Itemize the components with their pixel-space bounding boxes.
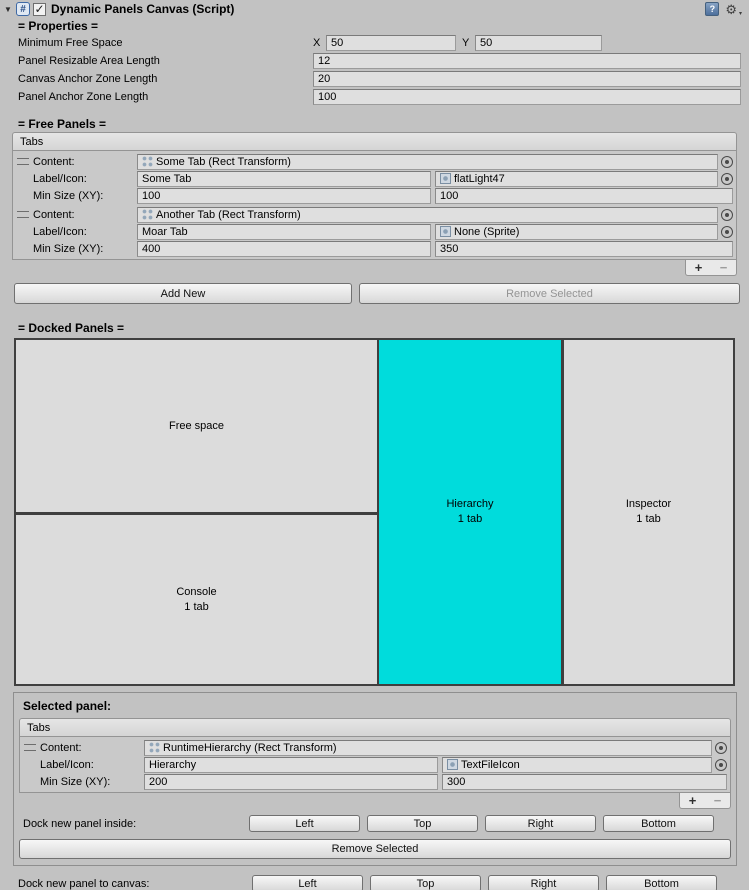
object-picker-icon[interactable] [721,226,733,238]
properties-section-title: = Properties = [0,18,749,34]
min-size-row: Min Size (XY): 400 350 [13,240,736,257]
tab-label-field[interactable]: Hierarchy [144,757,438,773]
panel-resizable-area-label: Panel Resizable Area Length [18,55,313,67]
remove-selected-button[interactable]: Remove Selected [359,283,740,304]
tab-icon-object-field[interactable]: None (Sprite) [435,224,718,240]
sprite-icon [447,759,458,770]
label-icon-row: Label/Icon: Some Tab flatLight47 [13,170,736,187]
content-object-field[interactable]: RuntimeHierarchy (Rect Transform) [144,740,712,756]
dock-canvas-buttons: Left Top Right Bottom [252,875,717,890]
tab-icon-value: flatLight47 [454,173,505,185]
min-size-x-field[interactable]: 200 [144,774,438,790]
enable-checkbox[interactable]: ✓ [33,3,46,16]
docked-panels-section-title: = Docked Panels = [0,320,749,336]
drag-handle-icon[interactable] [24,744,36,751]
minimum-free-space-y-field[interactable]: 50 [475,35,602,51]
dock-canvas-bottom-button[interactable]: Bottom [606,875,717,890]
dock-inside-left-button[interactable]: Left [249,815,360,832]
free-panels-section-title: = Free Panels = [0,116,749,132]
region-hierarchy-label: Hierarchy [446,497,493,512]
content-object-value: Some Tab (Rect Transform) [156,156,291,168]
content-row: Content: Another Tab (Rect Transform) [13,206,736,223]
add-new-button[interactable]: Add New [14,283,352,304]
minimum-free-space-x-field[interactable]: 50 [326,35,456,51]
tabs-list-body: Content: Some Tab (Rect Transform) Label… [12,150,737,260]
content-row: Content: RuntimeHierarchy (Rect Transfor… [20,739,730,756]
dock-canvas-top-button[interactable]: Top [370,875,481,890]
selected-panel-group: Selected panel: Tabs Content: RuntimeHie… [13,692,737,866]
content-label: Content: [40,742,144,754]
y-axis-label: Y [462,37,475,49]
inspector-component: ▼ # ✓ Dynamic Panels Canvas (Script) ? ⚙… [0,0,749,890]
tab-icon-value: TextFileIcon [461,759,520,771]
tab-element-selected: Content: RuntimeHierarchy (Rect Transfor… [20,739,730,790]
content-object-field[interactable]: Some Tab (Rect Transform) [137,154,718,170]
gear-icon[interactable]: ⚙ [725,3,737,16]
x-axis-label: X [313,37,326,49]
panel-anchor-zone-label: Panel Anchor Zone Length [18,91,313,103]
canvas-anchor-zone-row: Canvas Anchor Zone Length 20 [0,70,749,88]
dock-canvas-label: Dock new panel to canvas: [18,878,252,890]
gear-caret-icon: ▾ [739,10,742,17]
content-object-value: Another Tab (Rect Transform) [156,209,301,221]
label-icon-row: Label/Icon: Hierarchy TextFileIcon [20,756,730,773]
min-size-row: Min Size (XY): 100 100 [13,187,736,204]
remove-element-button[interactable]: − [714,793,722,808]
rect-transform-icon [142,156,153,167]
dock-canvas-left-button[interactable]: Left [252,875,363,890]
content-label: Content: [33,156,137,168]
tabs-header-label: Tabs [27,722,50,734]
region-free-space[interactable]: Free space [16,340,377,512]
region-inspector[interactable]: Inspector 1 tab [564,340,733,684]
tab-element-0: Content: Some Tab (Rect Transform) Label… [13,153,736,204]
minimum-free-space-row: Minimum Free Space X 50 Y 50 [0,34,749,52]
panel-resizable-area-field[interactable]: 12 [313,53,741,69]
min-size-label: Min Size (XY): [40,776,144,788]
min-size-row: Min Size (XY): 200 300 [20,773,730,790]
list-footer-buttons: + − [679,793,731,809]
tabs-list-header: Tabs [12,132,737,150]
list-footer: + − [19,793,731,809]
object-picker-icon[interactable] [721,173,733,185]
tabs-header-label: Tabs [20,136,43,148]
min-size-label: Min Size (XY): [33,190,137,202]
object-picker-icon[interactable] [715,742,727,754]
remove-selected-panel-button[interactable]: Remove Selected [19,839,731,859]
drag-handle-icon[interactable] [17,211,29,218]
tab-icon-object-field[interactable]: TextFileIcon [442,757,712,773]
list-footer-buttons: + − [685,260,737,276]
label-icon-label: Label/Icon: [40,759,144,771]
region-inspector-tabs: 1 tab [636,512,660,527]
region-free-space-label: Free space [169,419,224,434]
min-size-y-field[interactable]: 350 [435,241,733,257]
dock-inside-label: Dock new panel inside: [19,818,249,830]
min-size-x-field[interactable]: 100 [137,188,431,204]
object-picker-icon[interactable] [721,209,733,221]
free-panels-list: Tabs Content: Some Tab (Rect Transform) … [12,132,737,260]
min-size-label: Min Size (XY): [33,243,137,255]
dock-canvas-right-button[interactable]: Right [488,875,599,890]
list-footer: + − [12,260,737,276]
tab-icon-value: None (Sprite) [454,226,519,238]
content-object-field[interactable]: Another Tab (Rect Transform) [137,207,718,223]
min-size-y-field[interactable]: 100 [435,188,733,204]
dock-canvas-row: Dock new panel to canvas: Left Top Right… [0,875,749,890]
rect-transform-icon [142,209,153,220]
content-label: Content: [33,209,137,221]
drag-handle-icon[interactable] [17,158,29,165]
tabs-list-header: Tabs [19,718,731,736]
region-inspector-label: Inspector [626,497,671,512]
dock-inside-buttons: Left Top Right Bottom [249,815,714,832]
csharp-script-icon: # [16,2,30,16]
dock-inside-bottom-button[interactable]: Bottom [603,815,714,832]
add-element-button[interactable]: + [695,260,703,275]
region-hierarchy-tabs: 1 tab [458,512,482,527]
minimum-free-space-label: Minimum Free Space [18,37,313,49]
label-icon-label: Label/Icon: [33,226,137,238]
panel-anchor-zone-row: Panel Anchor Zone Length 100 [0,88,749,106]
canvas-anchor-zone-field[interactable]: 20 [313,71,741,87]
tabs-list-body: Content: RuntimeHierarchy (Rect Transfor… [19,736,731,793]
object-picker-icon[interactable] [721,156,733,168]
tab-label-field[interactable]: Moar Tab [137,224,431,240]
free-panel-actions: Add New Remove Selected [14,283,740,304]
object-picker-icon[interactable] [715,759,727,771]
panel-resizable-area-row: Panel Resizable Area Length 12 [0,52,749,70]
panel-anchor-zone-field[interactable]: 100 [313,89,741,105]
docked-panels-preview: Free space Console 1 tab Hierarchy 1 tab… [14,338,735,686]
foldout-icon[interactable]: ▼ [3,5,13,14]
selected-panel-title: Selected panel: [14,693,736,718]
min-size-x-field[interactable]: 400 [137,241,431,257]
content-object-value: RuntimeHierarchy (Rect Transform) [163,742,337,754]
label-icon-row: Label/Icon: Moar Tab None (Sprite) [13,223,736,240]
region-console-tabs: 1 tab [184,600,208,615]
component-title: Dynamic Panels Canvas (Script) [51,2,234,16]
sprite-icon [440,173,451,184]
canvas-anchor-zone-label: Canvas Anchor Zone Length [18,73,313,85]
component-header: ▼ # ✓ Dynamic Panels Canvas (Script) ? ⚙… [0,0,749,18]
content-row: Content: Some Tab (Rect Transform) [13,153,736,170]
label-icon-label: Label/Icon: [33,173,137,185]
tab-label-field[interactable]: Some Tab [137,171,431,187]
region-hierarchy[interactable]: Hierarchy 1 tab [379,340,561,684]
selected-panel-list: Tabs Content: RuntimeHierarchy (Rect Tra… [19,718,731,793]
dock-inside-right-button[interactable]: Right [485,815,596,832]
sprite-icon [440,226,451,237]
tab-element-1: Content: Another Tab (Rect Transform) La… [13,206,736,257]
remove-element-button[interactable]: − [720,260,728,275]
help-icon[interactable]: ? [705,2,719,16]
tab-icon-object-field[interactable]: flatLight47 [435,171,718,187]
region-console[interactable]: Console 1 tab [16,515,377,684]
dock-inside-row: Dock new panel inside: Left Top Right Bo… [19,815,714,832]
rect-transform-icon [149,742,160,753]
min-size-y-field[interactable]: 300 [442,774,727,790]
region-console-label: Console [176,585,216,600]
dock-inside-top-button[interactable]: Top [367,815,478,832]
add-element-button[interactable]: + [689,793,697,808]
